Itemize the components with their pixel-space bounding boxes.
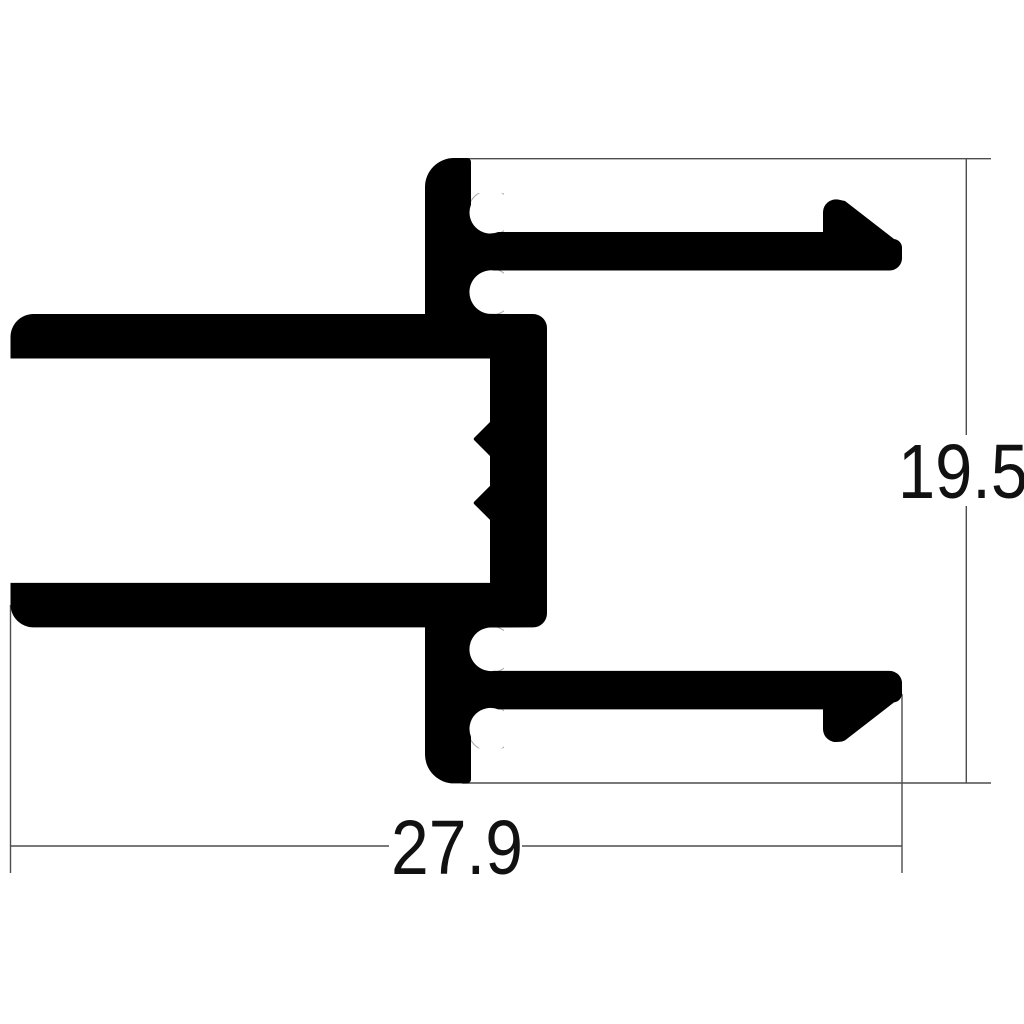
svg-text:27.9: 27.9 bbox=[391, 805, 523, 891]
svg-text:19.5: 19.5 bbox=[898, 429, 1024, 515]
